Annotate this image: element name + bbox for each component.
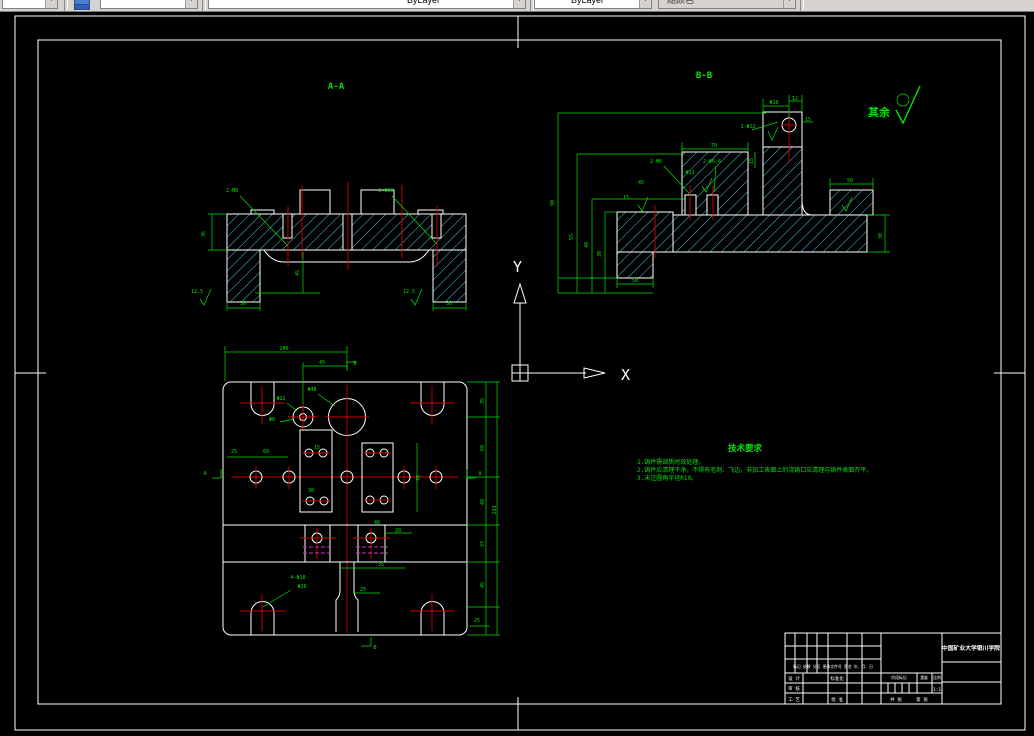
dim-label: 25	[231, 449, 237, 455]
dim-label: 25	[474, 618, 480, 624]
toolbar-separator	[800, 0, 804, 11]
ucs-x-label: X	[621, 366, 630, 384]
tech-requirement-item: 2.铸件应清理干净，不得有毛刺、飞边，非加工表面上的浇铸口应清理与铸件表面齐平。	[637, 466, 872, 474]
plot-style-value: 随颜色	[667, 0, 694, 5]
dim-label: 253	[492, 505, 498, 514]
section-view-a: A-A	[200, 82, 466, 311]
dim-label: 30	[597, 251, 603, 257]
chevron-down-icon[interactable]: ▼	[639, 0, 651, 8]
process-label: 工 艺	[788, 697, 800, 703]
dim-label: 48	[480, 499, 486, 505]
dim-label: Φ22	[276, 396, 285, 402]
plot-style-control[interactable]: 随颜色 ▼	[658, 0, 796, 9]
dim-label: 35	[378, 562, 384, 568]
toolbar-separator	[64, 0, 68, 11]
chevron-down-icon[interactable]: ▼	[783, 0, 795, 8]
dim-label: 35	[480, 398, 486, 404]
chevron-down-icon[interactable]: ▼	[185, 0, 197, 8]
weight-label: 重量	[920, 675, 928, 680]
chevron-down-icon[interactable]: ▼	[513, 0, 525, 8]
surface-finish-note: 其余	[868, 86, 920, 123]
roughness-icon	[896, 86, 920, 123]
scale-label: 比例	[933, 675, 941, 680]
dim-label: 25	[360, 587, 366, 593]
dim-label: 12	[792, 96, 798, 102]
sheet-total: 共 张	[890, 696, 902, 703]
dim-label: 15	[314, 445, 320, 451]
dim-label: Φ12	[685, 170, 694, 176]
chevron-down-icon[interactable]: ▼	[45, 0, 57, 8]
check-label: 审 核	[788, 685, 800, 692]
dim-label: A	[203, 471, 206, 477]
linetype-control[interactable]: ByLayer ▼	[534, 0, 652, 9]
title-block: 标记 处数 分区 更改文件号 签名 年、月、日 设 计 标准化 审 核 工 艺 …	[785, 633, 1001, 704]
dim-label: Φ26	[297, 584, 306, 590]
scale-value: 1:1	[933, 687, 941, 693]
dim-label: 1-Φ12	[740, 124, 755, 130]
tech-requirements-title: 技术要求	[728, 443, 763, 454]
dim-label: 37	[480, 541, 486, 547]
section-arrow	[212, 469, 221, 478]
toolbar-combo-left[interactable]: ▼	[2, 0, 58, 9]
dim-label: 30	[308, 488, 314, 494]
color-control[interactable]: ByLayer ▼	[208, 0, 526, 9]
dim-label: Φ8	[269, 417, 275, 423]
layers-icon[interactable]	[72, 0, 92, 9]
dim-label: 30	[878, 233, 884, 239]
tech-requirement-item: 3.未注圆角半径R10。	[637, 474, 697, 482]
dim-label: 4-Φ18	[290, 575, 305, 581]
dim-label: 70	[711, 143, 717, 149]
tech-requirements: 技术要求 1.铸件需调质时效处理。 2.铸件应清理干净，不得有毛刺、飞边，非加工…	[637, 443, 872, 482]
roughness-circle-icon	[897, 94, 909, 106]
ucs-y-label: Y	[513, 258, 522, 276]
toolbar-separator	[202, 0, 206, 11]
dim-label: B	[353, 361, 356, 367]
dim-label: 45	[295, 270, 301, 276]
dim-label: 200	[279, 346, 288, 352]
dim-label: 2-Φ6.6	[703, 159, 721, 165]
dim-label: Φ48	[307, 387, 316, 393]
dim-label: 36	[201, 231, 207, 237]
dim-label: 55	[569, 234, 575, 240]
dim-label: 15	[805, 117, 811, 123]
dim-label: 15	[623, 195, 629, 201]
standardization-label: 标准化	[830, 675, 844, 682]
dim-label: 30	[446, 301, 452, 307]
dim-label: 50	[632, 278, 638, 284]
dim-label: 30	[240, 301, 246, 307]
school-name: 中国矿业大学银川学院	[942, 644, 1000, 652]
dim-label: 2-Φ10	[378, 188, 393, 194]
dim-label: 12.5	[191, 289, 203, 295]
stage-mark-label: 阶段标记	[891, 675, 906, 680]
dim-label: 12.5	[403, 289, 415, 295]
dim-label: 20	[395, 528, 401, 534]
section-b-label: B-B	[696, 71, 713, 81]
dim-label: 60	[480, 445, 486, 451]
dim-label: 40	[374, 520, 380, 526]
dim-label: 60	[263, 449, 269, 455]
ucs-icon: Y X	[512, 258, 630, 384]
dim-label: A	[478, 471, 481, 477]
dim-label: 70	[416, 475, 422, 481]
dim-label: B	[373, 645, 376, 651]
tech-requirement-item: 1.铸件需调质时效处理。	[637, 458, 704, 466]
linetype-control-value: ByLayer	[571, 0, 604, 5]
dim-label: 45	[319, 360, 325, 366]
surface-note-label: 其余	[868, 105, 891, 119]
dim-label: Φ10	[769, 100, 778, 106]
dim-label: 45	[480, 582, 486, 588]
section-a-label: A-A	[328, 82, 345, 92]
section-view-b: B-B	[558, 71, 890, 293]
application-window: ▼ ▼ ByLayer ▼ ByLayer ▼ 随颜色 ▼	[0, 0, 1034, 736]
dim-label: 2-M6	[650, 159, 662, 165]
dim-label: 15	[749, 158, 755, 164]
dim-label: 50	[847, 178, 853, 184]
dim-label: 2-M8	[226, 188, 238, 194]
section-arrow	[361, 637, 371, 646]
plan-view	[212, 346, 500, 646]
approve-label: 批 准	[831, 696, 843, 703]
drawing-canvas[interactable]: Y X A-A	[0, 0, 1034, 736]
layer-control[interactable]: ▼	[100, 0, 198, 9]
dim-label: 90	[550, 200, 556, 206]
dim-label: 45	[638, 180, 644, 186]
toolbar: ▼ ▼ ByLayer ▼ ByLayer ▼ 随颜色 ▼	[0, 0, 1034, 12]
design-label: 设 计	[788, 675, 800, 682]
color-control-value: ByLayer	[407, 0, 440, 5]
dim-label: 40	[584, 242, 590, 248]
revision-header: 标记 处数 分区 更改文件号 签名 年、月、日	[793, 664, 873, 669]
sheet-index: 第 张	[916, 696, 928, 703]
